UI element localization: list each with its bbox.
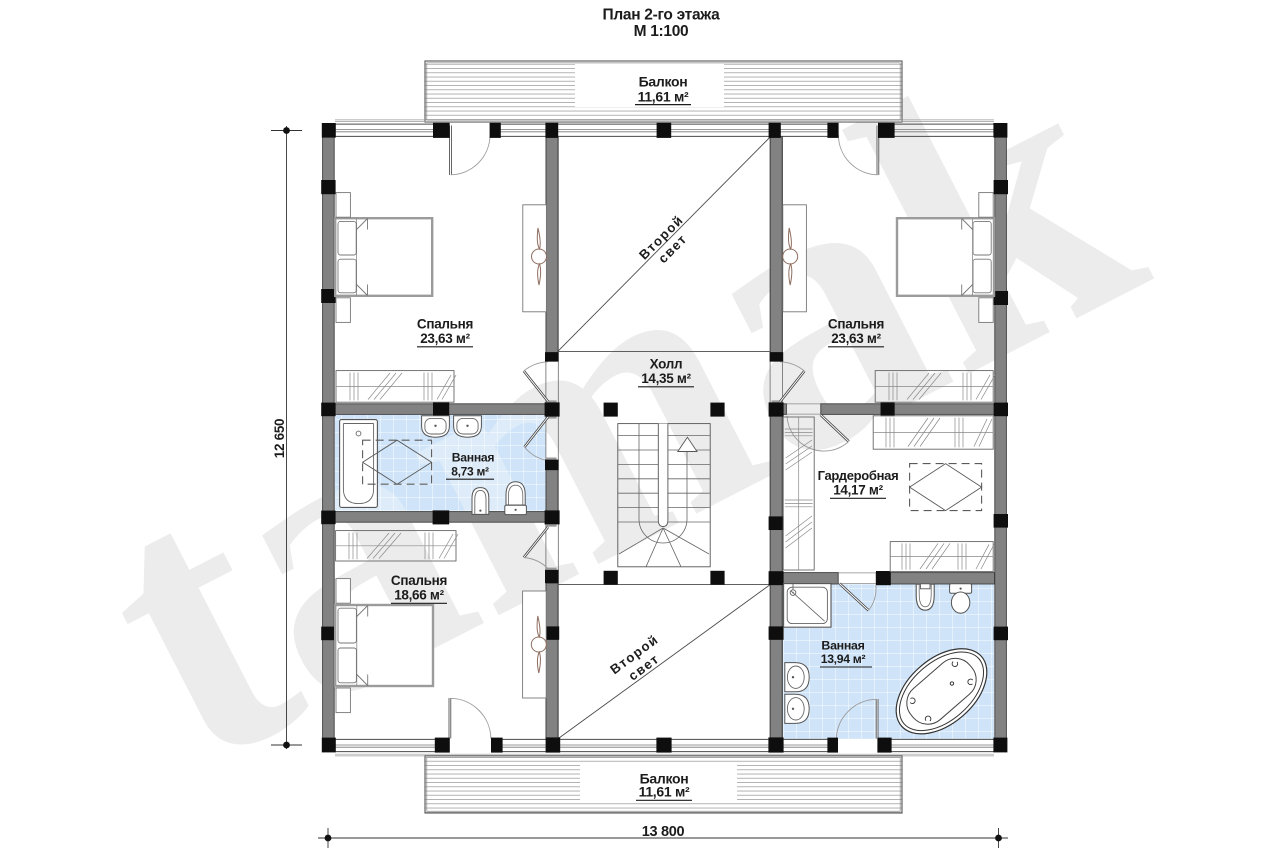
svg-text:11,61 м²: 11,61 м² bbox=[638, 89, 689, 105]
svg-text:Спальня: Спальня bbox=[828, 317, 884, 332]
svg-text:23,63 м²: 23,63 м² bbox=[420, 331, 470, 346]
svg-text:14,35 м²: 14,35 м² bbox=[641, 371, 691, 386]
svg-text:Холл: Холл bbox=[650, 357, 683, 372]
svg-text:М 1:100: М 1:100 bbox=[634, 23, 689, 40]
svg-text:14,17 м²: 14,17 м² bbox=[833, 483, 883, 498]
svg-text:8,73 м²: 8,73 м² bbox=[451, 465, 489, 479]
svg-text:Ванная: Ванная bbox=[452, 451, 495, 465]
svg-text:23,63 м²: 23,63 м² bbox=[831, 331, 881, 346]
svg-text:Спальня: Спальня bbox=[417, 317, 473, 332]
svg-text:18,66 м²: 18,66 м² bbox=[394, 588, 444, 603]
svg-text:13,94 м²: 13,94 м² bbox=[821, 652, 866, 666]
svg-text:Ванная: Ванная bbox=[821, 639, 864, 653]
svg-text:11,61 м²: 11,61 м² bbox=[639, 784, 690, 800]
svg-text:12 650: 12 650 bbox=[272, 419, 287, 459]
svg-text:Гардеробная: Гардеробная bbox=[818, 468, 899, 483]
svg-text:13 800: 13 800 bbox=[642, 824, 685, 840]
svg-text:Балкон: Балкон bbox=[639, 74, 688, 90]
svg-text:План 2-го этажа: План 2-го этажа bbox=[603, 7, 721, 24]
svg-text:Спальня: Спальня bbox=[391, 573, 447, 588]
